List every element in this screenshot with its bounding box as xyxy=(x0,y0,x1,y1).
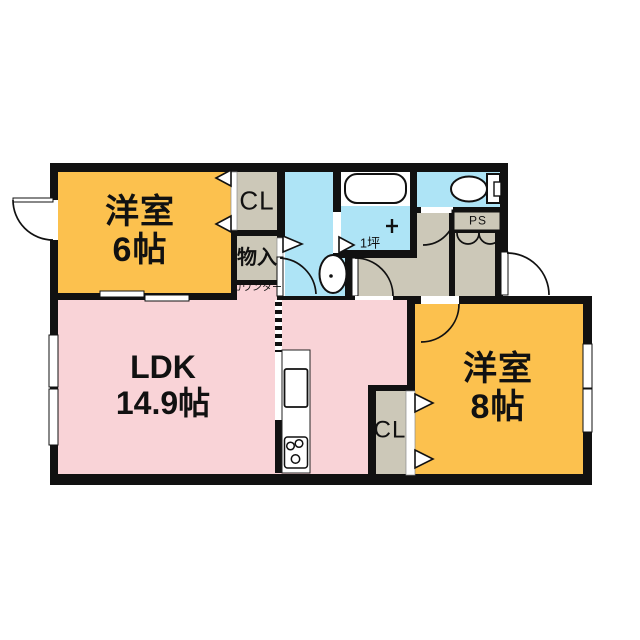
western6-exterior-door-opening xyxy=(50,200,58,240)
label-closet-south: CL xyxy=(374,418,407,445)
wall-western8-west xyxy=(407,304,415,390)
toilet-tank-notch xyxy=(494,182,501,196)
floorplan-canvas: 洋室 6帖 LDK 14.9帖 洋室 8帖 CL 物入 カウンター 1坪 PS … xyxy=(0,0,640,640)
wall-bath-east xyxy=(410,163,417,258)
entrance-door-swing xyxy=(507,253,549,295)
closet-north-folding-door xyxy=(231,172,237,230)
toilet-door-opening xyxy=(421,207,453,213)
label-counter: カウンター xyxy=(232,282,282,293)
ldk-name: LDK xyxy=(116,350,210,386)
kitchen-counter-edge xyxy=(275,352,282,420)
closet-south-folding-door xyxy=(406,391,415,475)
ldk-window-upper xyxy=(49,335,58,387)
label-pipe-space: PS xyxy=(469,214,487,227)
hall-door-threshold xyxy=(355,296,393,300)
toilet-bowl-icon xyxy=(451,177,487,202)
western6-exterior-door-swing xyxy=(13,200,53,240)
washbasin-drain xyxy=(329,274,333,278)
western6-exterior-door-leaf xyxy=(13,198,53,202)
room-ldk-floor xyxy=(58,300,407,475)
wall-closet-divider xyxy=(231,230,277,236)
ldk-size: 14.9帖 xyxy=(116,386,210,422)
western6-sliding-door-panel-2 xyxy=(145,295,189,301)
western8-door-opening xyxy=(421,296,459,304)
hallway-floor-north xyxy=(417,213,449,258)
label-western-room-8: 洋室 8帖 xyxy=(463,350,533,426)
label-bath-size: 1坪 xyxy=(360,237,380,252)
hall-door-leaf xyxy=(352,258,358,296)
western8-window-upper xyxy=(583,344,592,388)
gas-stove-icon xyxy=(285,437,308,468)
label-closet-north: CL xyxy=(239,186,274,215)
wall-outer-bottom xyxy=(50,474,592,485)
wall-floorline-east xyxy=(393,296,407,300)
kitchen-sink-icon xyxy=(285,369,308,407)
western8-name: 洋室 xyxy=(463,350,533,388)
washbasin-icon xyxy=(320,255,347,293)
wall-kitchen-stub xyxy=(275,420,282,473)
western6-size: 6帖 xyxy=(105,231,175,269)
western8-window-lower xyxy=(583,389,592,432)
western6-sliding-door-panel-1 xyxy=(100,291,144,297)
western6-name: 洋室 xyxy=(105,193,175,231)
ldk-window-lower xyxy=(49,389,58,445)
western8-size: 8帖 xyxy=(463,388,533,426)
label-ldk: LDK 14.9帖 xyxy=(116,350,210,422)
label-western-room-6: 洋室 6帖 xyxy=(105,193,175,269)
floorplan-drawing xyxy=(0,0,640,640)
bathtub-icon xyxy=(345,174,406,203)
wall-floorline-west xyxy=(277,296,355,300)
wall-closet-east xyxy=(277,163,285,238)
wall-closet-south-top xyxy=(368,385,415,391)
hallway-floor xyxy=(352,258,449,296)
entrance-door-leaf xyxy=(501,252,508,295)
label-storage-monoire: 物入 xyxy=(237,247,277,269)
